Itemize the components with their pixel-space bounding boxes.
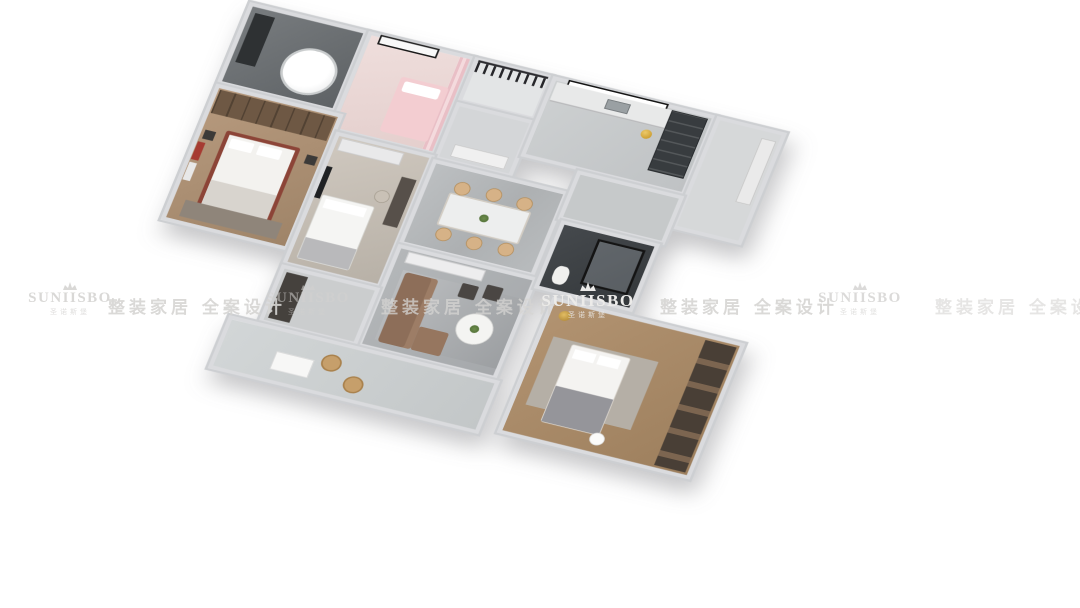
crown-icon (62, 282, 78, 290)
nightstand (304, 154, 318, 165)
balcony-table (269, 351, 314, 378)
desk-chair (372, 189, 392, 205)
balcony-chair (318, 353, 344, 374)
blanket (297, 237, 356, 270)
balcony-chair (340, 374, 366, 395)
cookware (639, 128, 653, 139)
table-plant (468, 324, 480, 334)
brand-tagline: 整装家居 全案设计 (935, 293, 1080, 318)
brand-logo: SUNIISBO 圣诺斯堡 (805, 282, 915, 316)
toilet (550, 265, 572, 286)
wall-art (191, 141, 206, 160)
apartment-3d-plan (104, 2, 856, 504)
floor-lamp (557, 310, 572, 322)
closet (268, 272, 308, 323)
bathroom-vanity (235, 13, 275, 67)
pillow (227, 138, 254, 153)
pillow (322, 199, 367, 218)
brand-chinese-name: 圣诺斯堡 (15, 309, 125, 316)
shoe-cabinet (735, 138, 776, 206)
pillow (572, 349, 597, 363)
crown-icon (852, 282, 868, 290)
balcony-railing (474, 60, 548, 89)
dining-chair (463, 235, 484, 252)
nightstand (202, 130, 216, 141)
table-plant (478, 213, 490, 223)
kitchen (520, 76, 717, 196)
window (377, 35, 440, 59)
floorplan-render: SUNIISBO 圣诺斯堡 整装家居 全案设计 SUNIISBO 圣诺斯堡 整装… (0, 0, 1080, 608)
guest-bedroom (497, 297, 746, 480)
brand-name: SUNIISBO (15, 291, 125, 306)
brand-name: SUNIISBO (805, 291, 915, 306)
wardrobe (654, 340, 737, 473)
brand-logo: SUNIISBO 圣诺斯堡 (15, 282, 125, 316)
bathtub (273, 43, 346, 101)
blanket (541, 386, 613, 435)
glass-shower (580, 239, 646, 295)
brand-chinese-name: 圣诺斯堡 (805, 309, 915, 316)
pillow (401, 81, 441, 100)
bed (296, 194, 375, 271)
